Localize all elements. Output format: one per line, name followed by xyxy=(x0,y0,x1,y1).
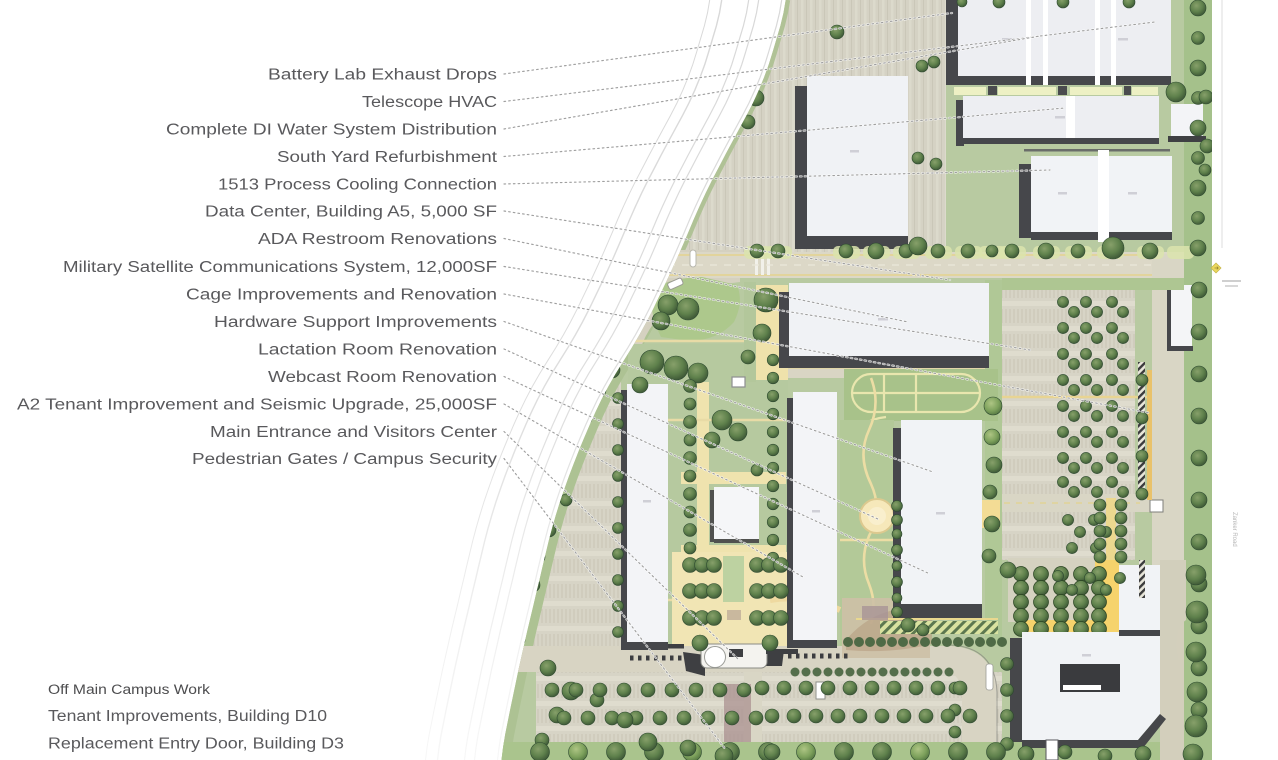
svg-text:ADA Restroom Renovations: ADA Restroom Renovations xyxy=(258,231,497,248)
svg-text:A2 Tenant Improvement and Seis: A2 Tenant Improvement and Seismic Upgrad… xyxy=(17,396,497,413)
svg-text:Replacement Entry Door, Buildi: Replacement Entry Door, Building D3 xyxy=(48,736,344,753)
svg-text:Cage Improvements and Renovati: Cage Improvements and Renovation xyxy=(186,286,497,303)
svg-text:Telescope HVAC: Telescope HVAC xyxy=(362,94,497,111)
svg-text:1513 Process Cooling Connectio: 1513 Process Cooling Connection xyxy=(218,176,497,193)
svg-text:Tenant Improvements, Building: Tenant Improvements, Building D10 xyxy=(48,708,327,725)
svg-text:Battery Lab Exhaust Drops: Battery Lab Exhaust Drops xyxy=(268,66,497,83)
svg-text:Webcast Room Renovation: Webcast Room Renovation xyxy=(268,369,497,386)
svg-text:Complete DI Water System Distr: Complete DI Water System Distribution xyxy=(166,121,497,138)
svg-text:Data Center, Building A5, 5,00: Data Center, Building A5, 5,000 SF xyxy=(205,203,497,220)
svg-text:Hardware Support Improvements: Hardware Support Improvements xyxy=(214,314,497,331)
svg-text:Military Satellite Communicati: Military Satellite Communications System… xyxy=(63,259,497,276)
svg-text:South Yard Refurbishment: South Yard Refurbishment xyxy=(277,149,498,166)
svg-text:Off Main Campus Work: Off Main Campus Work xyxy=(48,682,210,697)
svg-text:Pedestrian Gates / Campus Secu: Pedestrian Gates / Campus Security xyxy=(192,451,497,468)
svg-text:Zanker Road: Zanker Road xyxy=(1231,512,1237,547)
svg-text:Main Entrance and Visitors Cen: Main Entrance and Visitors Center xyxy=(210,424,497,441)
svg-text:Lactation Room Renovation: Lactation Room Renovation xyxy=(258,341,497,358)
